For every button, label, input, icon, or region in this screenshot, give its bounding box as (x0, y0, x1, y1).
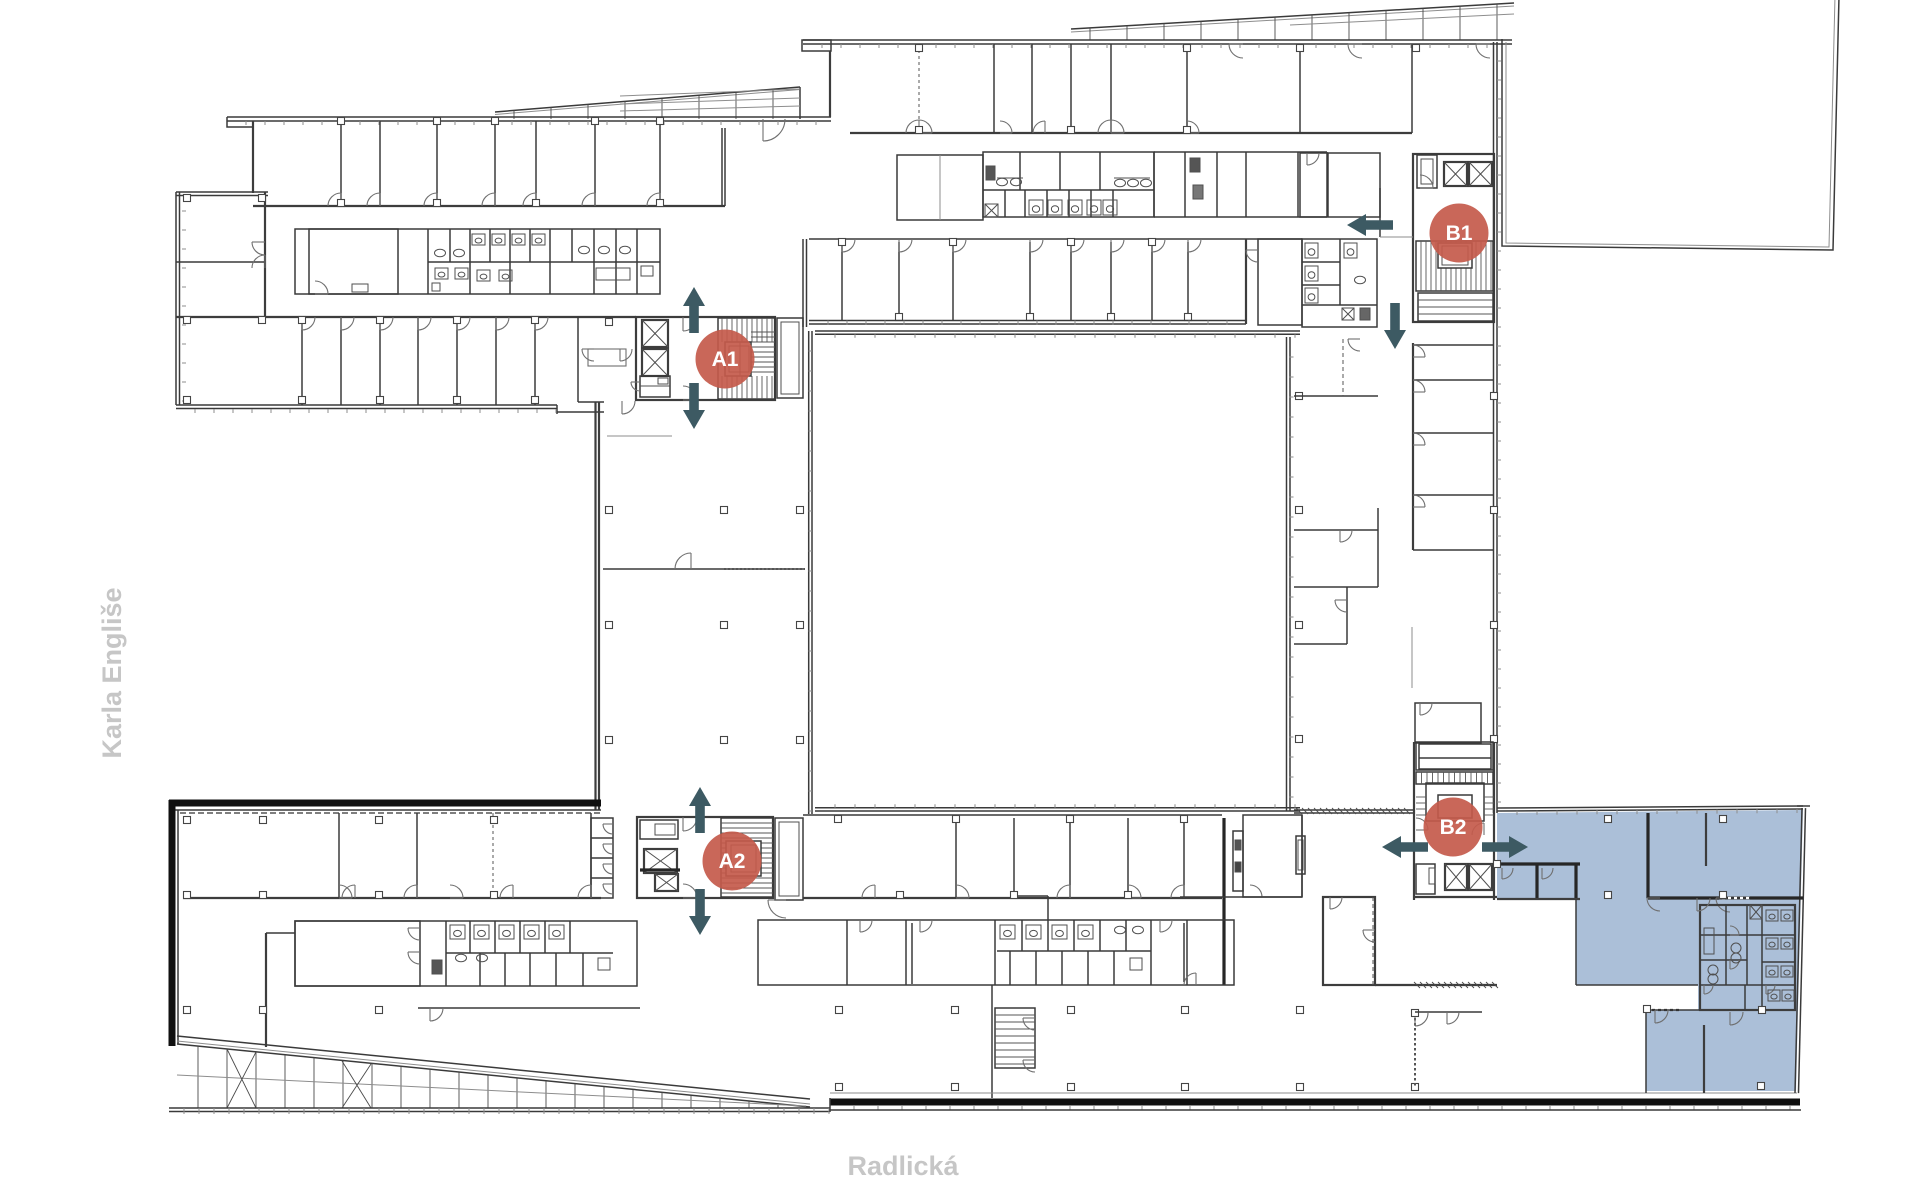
svg-text:B2: B2 (1440, 816, 1467, 839)
svg-text:Karla Engliše: Karla Engliše (97, 587, 127, 758)
svg-text:Radlická: Radlická (847, 1151, 959, 1181)
svg-text:A1: A1 (712, 348, 739, 371)
svg-text:A2: A2 (719, 850, 746, 873)
svg-text:B1: B1 (1446, 222, 1473, 245)
